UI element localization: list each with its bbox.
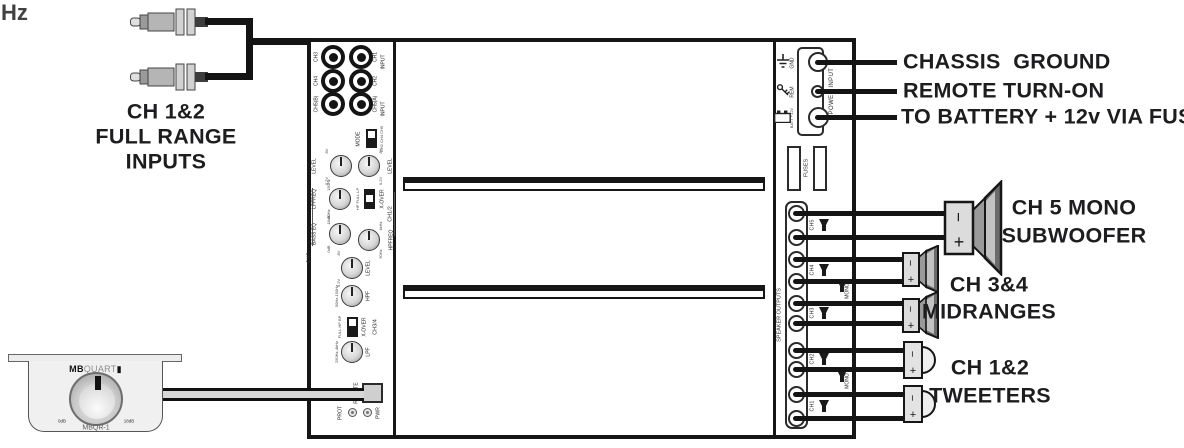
ch5-level-knob	[330, 155, 352, 177]
input-jack-ch5a	[349, 92, 373, 116]
pwr-led	[363, 408, 372, 417]
inputs-caption-line2: FULL RANGE	[95, 125, 236, 150]
lpf-label: LPF	[367, 347, 372, 356]
rca-cable	[246, 18, 253, 80]
jack-label-ch3: CH3	[315, 52, 320, 62]
basseq-min-mark: 0dB	[327, 245, 331, 252]
ch12-xover-label: X-OVER	[381, 189, 386, 208]
speaker-wire	[793, 211, 946, 216]
speaker-wire	[793, 257, 905, 262]
hpf-label: HPF	[367, 291, 372, 301]
out-ch5-label: CH5	[810, 219, 816, 230]
speaker-icon	[818, 307, 830, 319]
remote-model-label: MBQR-1	[82, 425, 109, 432]
tw-caption-line1: CH 1&2	[951, 356, 1029, 381]
remote-min-mark: 0dB	[58, 419, 66, 424]
ch5-lpfreq-knob	[329, 188, 351, 210]
remote-gain-knob	[69, 372, 123, 426]
input-jack-ch4	[321, 69, 345, 93]
rem-label: REM	[791, 86, 796, 97]
tw-plus: +	[910, 365, 916, 377]
mid-plus: +	[908, 320, 914, 332]
chassis-ground-label: CHASSIS GROUND	[903, 50, 1111, 75]
tw-minus: −	[907, 395, 919, 401]
mode-label: MODE	[357, 132, 362, 147]
batt-wire	[815, 115, 897, 120]
mid-caption-line2: MIDRANGES	[922, 300, 1056, 325]
logo-mb: MB	[69, 364, 84, 374]
out-ch4-label: CH4	[810, 264, 816, 275]
mono-label: MONO	[846, 283, 851, 299]
gnd-label: GND	[791, 57, 796, 68]
rem-wire	[815, 89, 897, 94]
speaker-outputs-label: SPEAKER OUTPUTS	[777, 288, 783, 342]
out-ch2-label: CH2	[810, 353, 816, 364]
jack-label-ch1: CH1	[374, 52, 379, 62]
vent-slot	[403, 177, 765, 191]
fuse-2	[813, 146, 827, 191]
inputs-caption-line1: CH 1&2	[127, 100, 205, 125]
sub-plus: +	[954, 232, 965, 252]
rca-plug-top-icon	[130, 8, 208, 36]
remote-key-icon	[777, 84, 790, 97]
ch5-level-label: LEVEL	[313, 158, 318, 174]
hpf-range: 50Hz-150Hz	[335, 285, 339, 307]
mono-label: MONO	[846, 373, 851, 389]
rca-plug-bottom-icon	[130, 63, 208, 91]
ch12-bracket-label: CH1/2	[388, 206, 394, 222]
jack-label-ch5a: CH5(A)	[374, 96, 379, 113]
hz-label: Hz	[1, 0, 28, 26]
wiring-diagram: Hz CH 1&2 FULL RANGE INPUTS CH3 CH4 CH5(…	[0, 0, 1184, 448]
prot-led-label: PROT	[339, 406, 344, 420]
ch34-lpf-knob	[341, 341, 363, 363]
ground-icon	[776, 54, 790, 70]
speaker-wire	[793, 279, 905, 284]
sub-caption-line1: CH 5 MONO	[1012, 196, 1137, 221]
lpf-range: 250Hz-4kHz	[335, 341, 339, 363]
level-max-mark: 8V	[325, 149, 329, 154]
subwoofer-speaker: − +	[943, 180, 1005, 276]
midrange-speaker-1: − +	[902, 245, 940, 293]
level-max-mark: 8V	[379, 149, 383, 154]
input-jack-ch1	[349, 45, 373, 69]
level-max-mark: 8V	[337, 251, 341, 256]
pwr-led-label: PWR	[377, 407, 382, 419]
hpfreq-min-mark: 50Hz	[379, 249, 383, 258]
battery-label: TO BATTERY + 12v VIA FUSE	[901, 105, 1184, 130]
mid-minus: −	[905, 306, 917, 312]
tweeter-speaker-1: − +	[903, 340, 937, 380]
lpfreq-label: LPFREQ	[313, 189, 318, 209]
ch34-xover-label: X-OVER	[363, 317, 368, 336]
out-ch3-label: CH3	[810, 307, 816, 318]
fuse-1	[787, 146, 801, 191]
ch12-level-label: LEVEL	[389, 158, 394, 174]
mid-caption-line1: CH 3&4	[950, 273, 1028, 298]
ch12-xover-switch	[364, 189, 375, 209]
ch34-level-label: LEVEL	[367, 260, 372, 276]
jack-label-ch5b: CH5(B)	[315, 96, 320, 113]
input-jack-ch3	[321, 45, 345, 69]
logo-block: ▮	[117, 364, 122, 374]
input-label: INPUT	[382, 55, 387, 70]
ch34-bracket-label: CH3/4	[373, 319, 379, 335]
ch12-bracket-line	[394, 192, 395, 236]
speaker-wire	[793, 301, 905, 306]
speaker-wire	[793, 367, 906, 372]
speaker-wire	[793, 392, 906, 397]
ch5-bracket-label: CH5	[307, 252, 313, 263]
speaker-icon	[818, 264, 830, 276]
basseq-max-mark: 18dB	[327, 215, 331, 224]
ch34-level-knob	[341, 257, 363, 279]
ch5-bracket-line	[312, 188, 313, 246]
ch12-level-knob	[358, 155, 380, 177]
tw-minus: −	[907, 351, 919, 357]
vent-slot	[403, 285, 765, 299]
input-jack-ch2	[349, 69, 373, 93]
speaker-wire	[793, 321, 905, 326]
speaker-icon	[818, 353, 830, 365]
jack-label-ch4: CH4	[315, 76, 320, 86]
ch34-hpf-knob	[341, 285, 363, 307]
gnd-wire	[815, 60, 897, 65]
sub-minus: −	[949, 212, 968, 222]
remote-turnon-label: REMOTE TURN-ON	[903, 79, 1104, 104]
speaker-wire	[793, 348, 906, 353]
level-min-mark: 0.2V	[379, 177, 383, 185]
tw-caption-line2: TWEETERS	[929, 384, 1051, 409]
fuses-label: FUSES	[804, 159, 810, 177]
lpfreq-max-mark: 150Hz	[327, 179, 331, 191]
sub-caption-line2: SUBWOOFER	[1002, 224, 1147, 249]
jack-label-ch2: CH2	[374, 76, 379, 86]
ch12-xover-options: HP FULL LP	[356, 188, 360, 210]
remote-max-mark: 18dB	[124, 419, 135, 424]
speaker-wire	[793, 416, 906, 421]
speaker-icon	[818, 219, 830, 231]
ch12-hpfreq-knob	[358, 229, 380, 251]
ch34-xover-switch	[347, 317, 358, 337]
speaker-icon	[818, 400, 830, 412]
batt-label: BATT +12V	[790, 108, 794, 128]
tw-plus: +	[910, 409, 916, 421]
out-ch1-label: CH1	[810, 400, 816, 411]
prot-led	[348, 408, 357, 417]
remote-cable	[163, 388, 364, 401]
remote-port	[362, 383, 383, 403]
ch5-basseq-knob	[329, 223, 351, 245]
hpfreq-max-mark: 4kHz	[379, 221, 383, 230]
mid-minus: −	[905, 260, 917, 266]
mode-switch	[366, 129, 377, 148]
ch34-xover-options: FULL HP BP	[338, 316, 342, 339]
basseq-label: BASS EQ	[313, 223, 318, 245]
mid-plus: +	[908, 274, 914, 286]
connector-strip-divider	[773, 40, 776, 437]
input-jack-ch5b	[321, 92, 345, 116]
input-label: INPUT	[382, 102, 387, 117]
speaker-wire	[793, 235, 946, 240]
inputs-caption-line3: INPUTS	[126, 150, 207, 175]
